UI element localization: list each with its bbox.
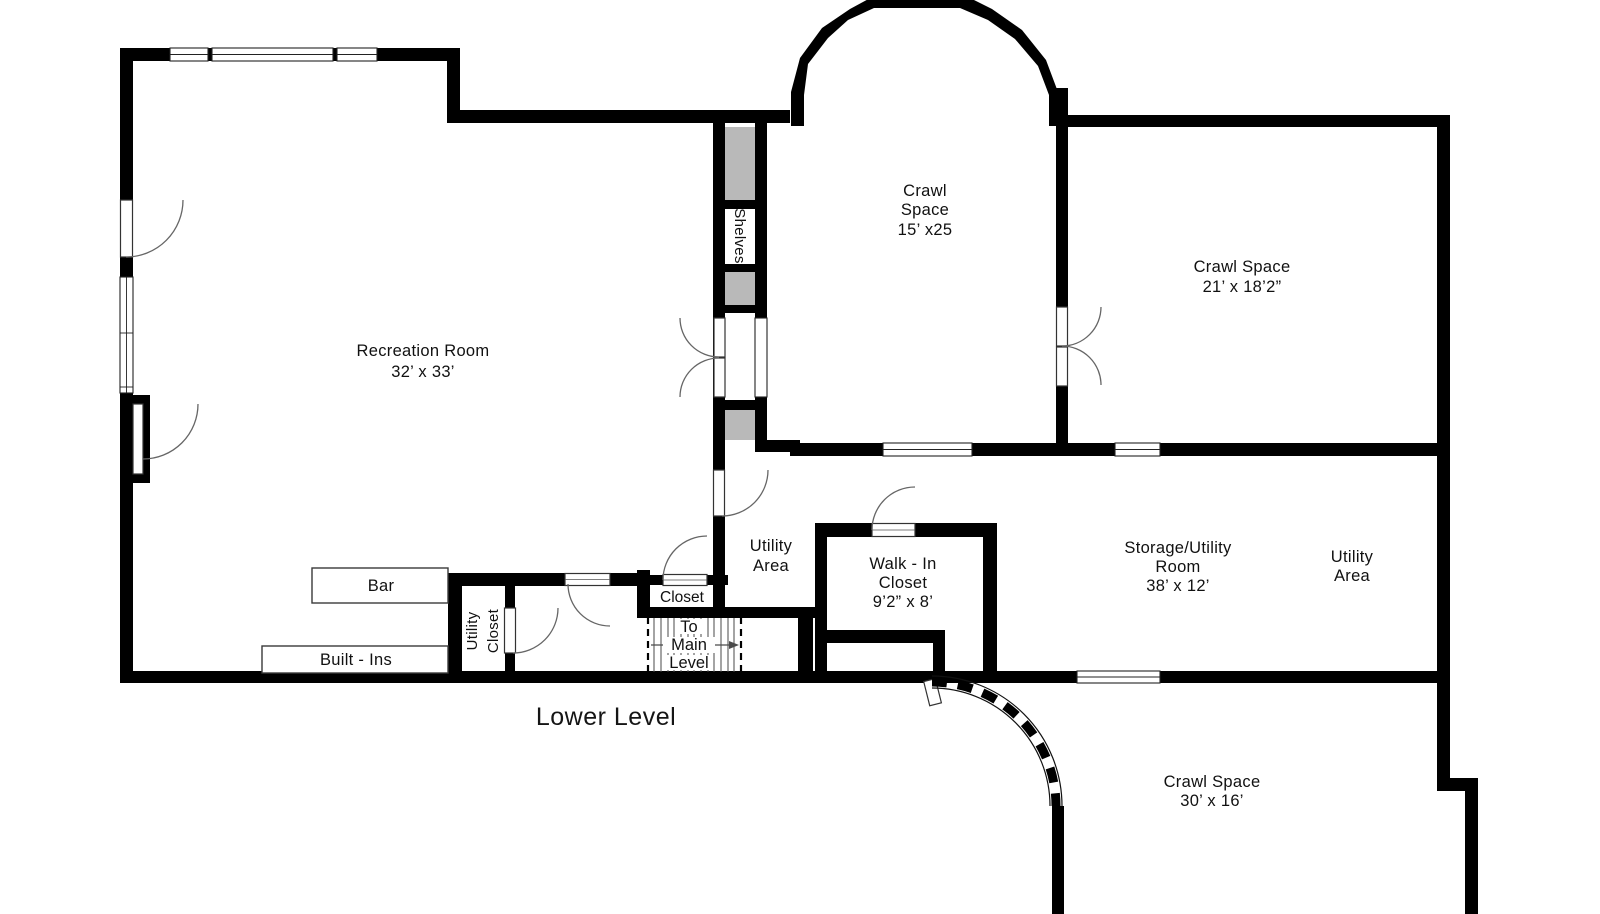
- room-label-utility-right-line2: Area: [1334, 567, 1371, 585]
- door-rec-alcove: [133, 404, 198, 474]
- door-small-room-top: [565, 574, 610, 627]
- window-storage-top-2: [1115, 443, 1160, 456]
- shelf-bays: [725, 127, 755, 440]
- door-closet: [663, 536, 707, 586]
- door-double-shelves: [680, 318, 767, 397]
- stairs-to-main-level: To Main Level: [648, 617, 741, 672]
- room-dims-crawl21: 21’ x 18’2”: [1203, 278, 1282, 296]
- stairs-label-line2: Main: [671, 636, 707, 654]
- stairs-label-line1: To: [680, 618, 697, 636]
- room-label-recreation: Recreation Room: [357, 342, 490, 360]
- curved-crawl-wall: [932, 676, 1062, 806]
- room-label-crawl15-line1: Crawl: [903, 182, 947, 200]
- window-left: [120, 277, 133, 393]
- door-walkin-closet: [872, 487, 915, 537]
- room-label-walkin-line2: Closet: [879, 574, 928, 592]
- room-label-utility-closet-line1: Utility: [464, 611, 481, 650]
- window-storage-bottom: [1077, 671, 1160, 683]
- room-labels: Recreation Room 32’ x 33’ Crawl Space 15…: [357, 182, 1374, 810]
- walls: [120, 0, 1478, 914]
- room-label-closet: Closet: [660, 589, 705, 606]
- bar-label: Bar: [368, 577, 395, 595]
- room-label-crawl30: Crawl Space: [1164, 773, 1261, 791]
- room-label-storage-line2: Room: [1155, 558, 1200, 576]
- room-label-utility-right-line1: Utility: [1331, 548, 1374, 566]
- room-label-walkin-line1: Walk - In: [869, 555, 936, 573]
- window-storage-top-1: [883, 443, 972, 456]
- room-label-crawl21: Crawl Space: [1194, 258, 1291, 276]
- plan-title: Lower Level: [536, 703, 676, 731]
- room-label-storage-line1: Storage/Utility: [1124, 539, 1232, 557]
- bar-counter: Bar: [312, 568, 448, 603]
- floor-plan: To Main Level Bar Built - Ins Recreation…: [0, 0, 1600, 914]
- furniture: Bar Built - Ins: [262, 568, 448, 673]
- built-ins: Built - Ins: [262, 646, 448, 673]
- room-dims-crawl15: 15’ x25: [898, 221, 953, 239]
- room-dims-recreation: 32’ x 33’: [391, 363, 455, 381]
- room-label-utility-left-line2: Area: [753, 557, 790, 575]
- shelves-label: Shelves: [731, 208, 748, 263]
- door-rec-left: [121, 200, 184, 257]
- room-label-utility-left-line1: Utility: [750, 537, 793, 555]
- stairs-label-line3: Level: [669, 654, 708, 672]
- room-dims-walkin: 9’2” x 8’: [873, 593, 933, 611]
- window-top-3: [337, 48, 377, 61]
- window-top-2: [212, 48, 333, 61]
- room-label-crawl15-line2: Space: [901, 201, 949, 219]
- built-ins-label: Built - Ins: [320, 651, 392, 669]
- door-double-crawl21: [1057, 307, 1102, 386]
- door-utility-area: [714, 470, 769, 516]
- room-dims-storage: 38’ x 12’: [1146, 577, 1210, 595]
- room-label-utility-closet-line2: Closet: [485, 608, 502, 653]
- floor-plan-page: To Main Level Bar Built - Ins Recreation…: [0, 0, 1600, 914]
- window-top-1: [170, 48, 208, 61]
- door-utility-closet: [505, 608, 559, 653]
- room-dims-crawl30: 30’ x 16’: [1180, 792, 1244, 810]
